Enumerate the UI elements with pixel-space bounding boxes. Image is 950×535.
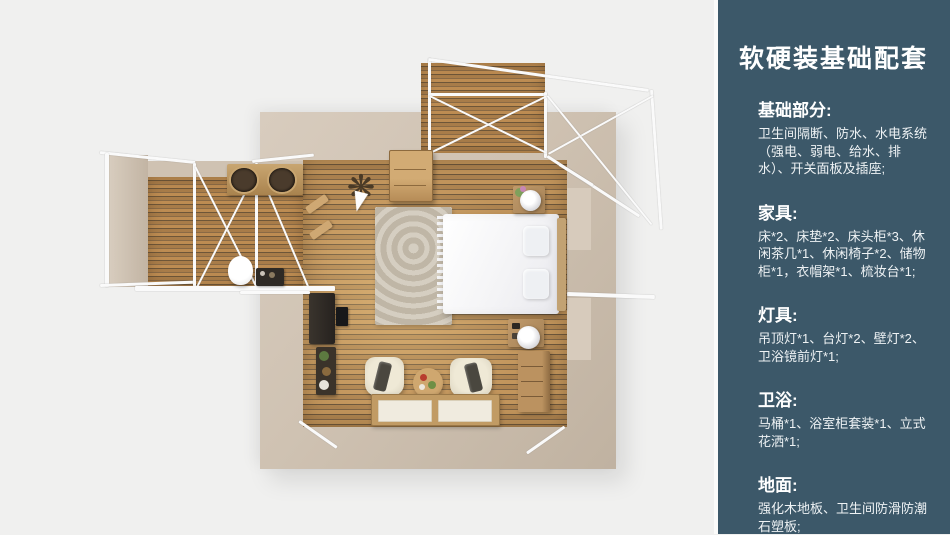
- bottle-item: [260, 271, 265, 276]
- bathroom-side-table: [256, 268, 284, 286]
- frame-beam: [428, 58, 431, 157]
- sidebar-title: 软硬装基础配套: [739, 44, 950, 74]
- section-foundation-heading: 基础部分:: [758, 101, 932, 120]
- chest-seam: [394, 185, 426, 186]
- slide: ❋: [0, 0, 950, 534]
- section-lighting-body: 吊顶灯*1、台灯*2、壁灯*2、卫浴镜前灯*1;: [758, 330, 932, 365]
- book-item: [512, 323, 520, 329]
- drawer-seam: [521, 366, 543, 367]
- section-flooring-body: 强化木地板、卫生间防滑防潮石塑板;: [758, 500, 932, 535]
- chair-cushion: [464, 362, 484, 393]
- bottle-item: [269, 272, 275, 278]
- section-foundation-body: 卫生间隔断、防水、水电系统（强电、弱电、给水、排水）、开关面板及插座;: [758, 125, 932, 178]
- section-lighting-heading: 灯具:: [758, 306, 932, 325]
- pillow: [523, 269, 549, 299]
- hat-item: [319, 380, 329, 390]
- drawer-seam: [521, 381, 543, 382]
- sink-basin-left: [231, 168, 257, 192]
- storage-cabinet: [518, 351, 550, 412]
- floor-mattress-platform: [371, 394, 500, 426]
- section-flooring-heading: 地面:: [758, 476, 932, 495]
- toilet: [228, 256, 253, 285]
- sink-basin-right: [269, 168, 295, 192]
- frame-beam: [544, 92, 547, 158]
- section-furniture-heading: 家具:: [758, 204, 932, 223]
- floor-plan-render: ❋: [0, 0, 717, 534]
- plant: [428, 381, 436, 389]
- desk: [309, 293, 335, 344]
- section-foundation: 基础部分: 卫生间隔断、防水、水电系统（强电、弱电、给水、排水）、开关面板及插座…: [758, 101, 932, 178]
- section-furniture: 家具: 床*2、床垫*2、床头柜*3、休闲茶几*1、休闲椅子*2、储物柜*1，衣…: [758, 204, 932, 281]
- floor-mattress: [378, 400, 432, 422]
- plant: [319, 351, 329, 361]
- bed-headboard: [557, 218, 566, 311]
- frame-rail: [240, 291, 310, 294]
- section-furniture-body: 床*2、床垫*2、床头柜*3、休闲茶几*1、休闲椅子*2、储物柜*1，衣帽架*1…: [758, 228, 932, 281]
- section-bathroom: 卫浴: 马桶*1、浴室柜套装*1、立式花洒*1;: [758, 391, 932, 450]
- basket-item: [322, 367, 331, 376]
- wall-slat-panel-top: [567, 188, 591, 250]
- double-bed: [443, 214, 559, 314]
- table-lamp-bottom: [517, 326, 540, 349]
- frame-post: [105, 153, 109, 287]
- chest-seam: [394, 169, 426, 170]
- frame-beam: [428, 93, 547, 96]
- lounge-chair-left: [365, 357, 404, 396]
- bathroom-left-wall: [107, 155, 148, 287]
- wall-slat-panel-bottom: [567, 298, 591, 360]
- info-sidebar: 软硬装基础配套 基础部分: 卫生间隔断、防水、水电系统（强电、弱电、给水、排水）…: [718, 0, 950, 534]
- drawer-seam: [521, 396, 543, 397]
- plant-shelf: [316, 347, 336, 395]
- section-bathroom-heading: 卫浴:: [758, 391, 932, 410]
- tv: [336, 307, 348, 326]
- chair-cushion: [373, 361, 393, 392]
- fruit-item: [420, 374, 427, 381]
- cup-item: [419, 384, 425, 390]
- bathroom-vanity: [227, 164, 303, 195]
- frame-beam: [650, 90, 663, 230]
- table-lamp-top: [520, 190, 541, 211]
- glass-partition-post: [193, 163, 196, 289]
- section-lighting: 灯具: 吊顶灯*1、台灯*2、壁灯*2、卫浴镜前灯*1;: [758, 306, 932, 365]
- sidebar-sections: 基础部分: 卫生间隔断、防水、水电系统（强电、弱电、给水、排水）、开关面板及插座…: [758, 101, 932, 535]
- pillow: [523, 226, 549, 256]
- section-flooring: 地面: 强化木地板、卫生间防滑防潮石塑板;: [758, 476, 932, 535]
- balcony-deck: [421, 63, 545, 153]
- lounge-chair-right: [450, 358, 492, 397]
- floor-mattress: [438, 400, 492, 422]
- section-bathroom-body: 马桶*1、浴室柜套装*1、立式花洒*1;: [758, 415, 932, 450]
- storage-chest: [389, 150, 433, 202]
